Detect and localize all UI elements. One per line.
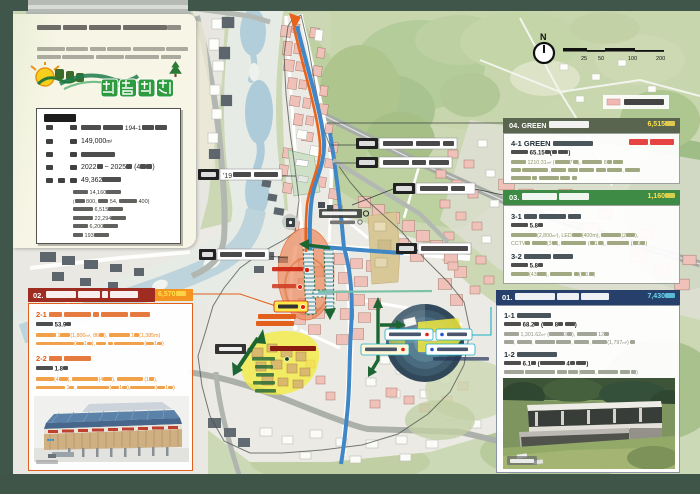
svg-text:■■■: ■■■ <box>47 437 55 442</box>
svg-text:'19: '19 <box>223 173 232 180</box>
svg-text:200: 200 <box>656 56 665 62</box>
svg-text:50: 50 <box>598 56 604 62</box>
svg-text:100: 100 <box>628 56 637 62</box>
svg-text:25: 25 <box>581 56 587 62</box>
svg-text:N: N <box>540 32 547 42</box>
